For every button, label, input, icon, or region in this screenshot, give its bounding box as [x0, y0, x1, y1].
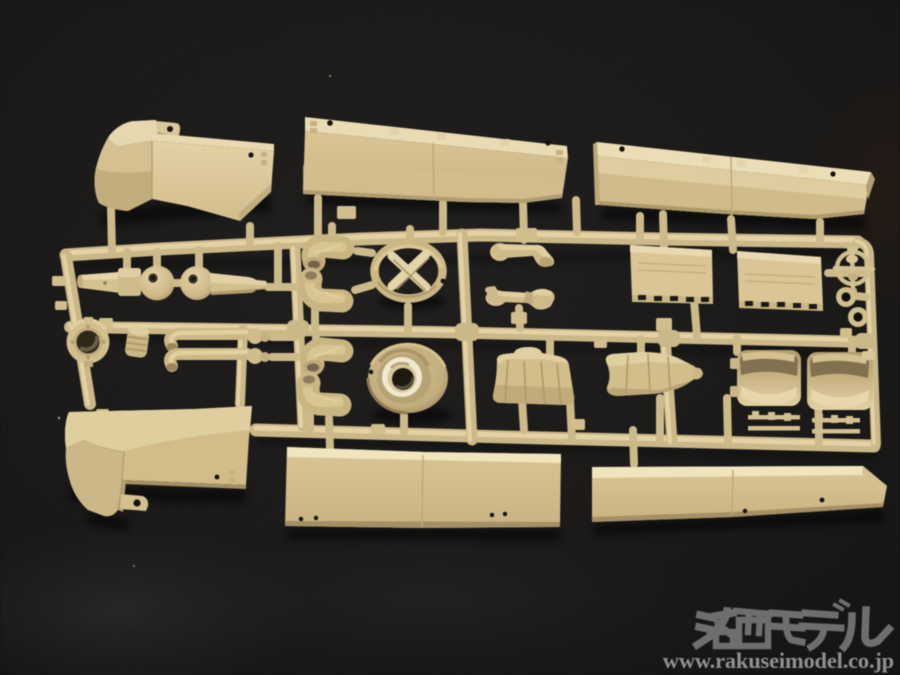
svg-text:www.rakuseimodel.co.jp: www.rakuseimodel.co.jp: [663, 648, 894, 673]
